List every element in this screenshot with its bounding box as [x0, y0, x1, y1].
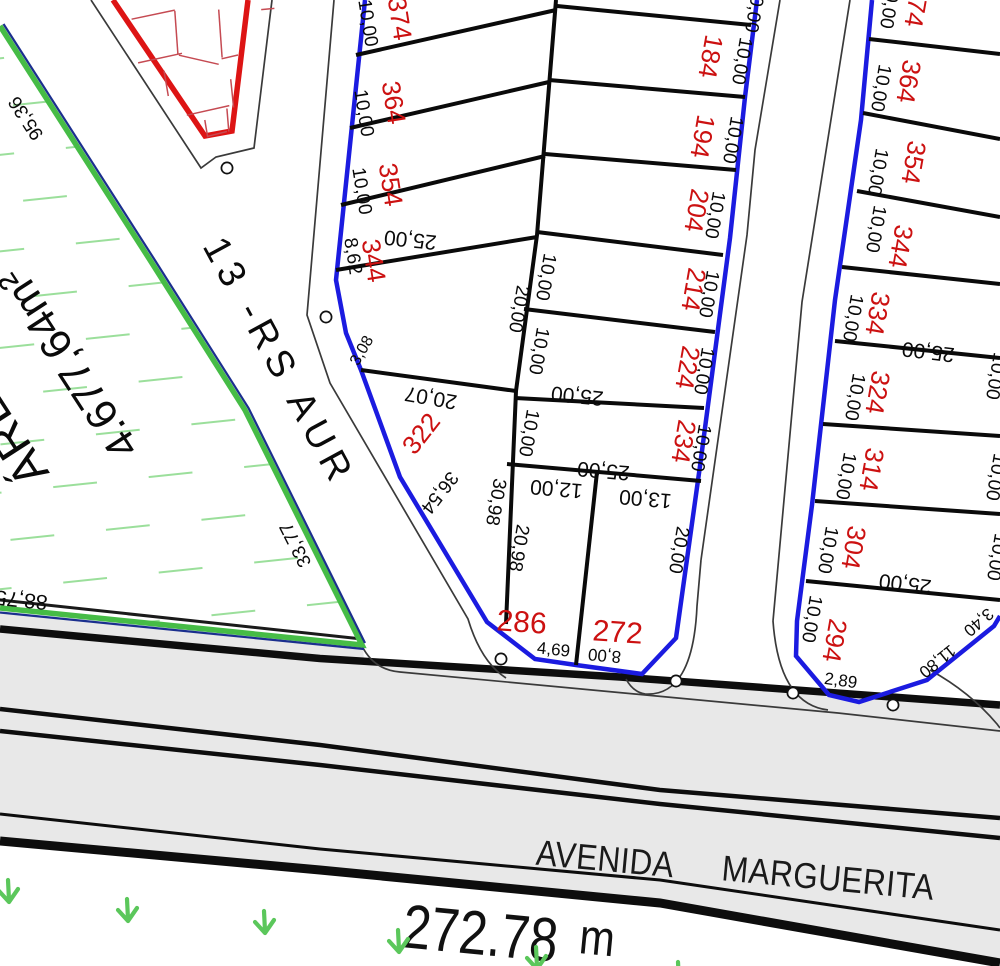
svg-text:286: 286 [496, 604, 548, 640]
svg-text:13,00: 13,00 [618, 485, 672, 512]
svg-text:4,69: 4,69 [536, 638, 571, 660]
svg-text:12,00: 12,00 [529, 475, 583, 502]
svg-text:272: 272 [592, 614, 644, 650]
svg-text:m: m [577, 908, 618, 966]
